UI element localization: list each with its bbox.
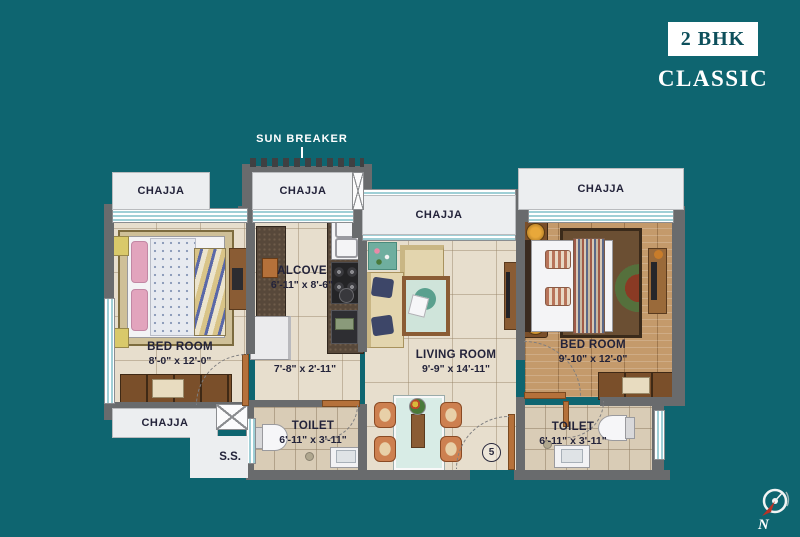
room-size: 6'-11" x 3'-11" [518,435,628,449]
plan-type-badge: 2 BHK [668,22,758,56]
room-size: 8'-0" x 12'-0" [115,355,245,369]
planter [368,242,397,270]
wall [600,397,685,406]
basin-inner [561,449,583,463]
sink-basin [335,238,358,258]
sun-breaker-label: SUN BREAKER [250,133,354,145]
wardrobe-items [152,379,184,398]
chajja-panel: CHAJJA [252,172,354,210]
room-name: LIVING ROOM [386,348,526,363]
room-size: 9'-10" x 12'-0" [525,353,661,367]
toilet-right-label: TOILET 6'-11" x 3'-11" [518,420,628,449]
desk-item [654,250,663,259]
room-name: BED ROOM [115,340,245,355]
chajja-panel: CHAJJA [518,168,684,210]
room-size: 6'-11" x 3'-11" [262,434,364,448]
service-slab-area: S.S. [190,436,248,478]
wall [246,400,326,407]
sofa-cushion [371,315,394,337]
plan-subtitle: CLASSIC [640,66,786,92]
wardrobe-items [622,377,650,394]
bed-pillow [131,241,148,283]
chajja-panel: CHAJJA [362,195,516,235]
microwave-door [335,318,354,330]
room-size: 7'-8" x 2'-11" [252,363,358,377]
door-number-badge: 5 [482,443,501,462]
bed-pillow [545,287,571,306]
window [112,208,248,223]
living-room-label: LIVING ROOM 9'-9" x 14'-11" [386,348,526,377]
ss-label: S.S. [219,451,241,463]
sofa-cushion [371,277,394,299]
bedroom-right-label: BED ROOM 9'-10" x 12'-0" [525,338,661,367]
passage-label: 7'-8" x 2'-11" [252,363,358,377]
room-name: ALCOVE [252,264,352,279]
sun-breaker-teeth [250,158,364,167]
fridge [250,316,291,360]
bed-throw [194,248,226,336]
duct-shaft [216,404,248,430]
wall [246,470,470,480]
bed-runner [573,238,605,334]
bed-pillow [545,250,571,269]
room-name: TOILET [262,419,364,434]
room-name: BED ROOM [525,338,661,353]
window [104,298,115,404]
room-size: 6'-11" x 8'-6" [252,279,352,293]
wall [516,222,525,360]
floor-drain [305,452,314,461]
sun-breaker-pointer [301,147,303,158]
table-runner [411,414,425,448]
window [528,208,674,223]
compass-icon: N [750,484,798,532]
basin-inner [336,450,356,463]
dining-chair [440,402,462,428]
toilet-left-label: TOILET 6'-11" x 3'-11" [262,419,364,448]
bed-duvet [150,238,196,336]
wall [358,222,367,352]
main-door-leaf [508,414,515,470]
wall [672,206,685,401]
duct-shaft [352,172,364,210]
bedroom-left-label: BED ROOM 8'-0" x 12'-0" [115,340,245,369]
dresser-top [232,268,243,290]
chajja-panel: CHAJJA [112,172,210,210]
window [654,410,665,460]
room-name: TOILET [518,420,628,435]
dining-chair [374,436,396,462]
bed-pillow [131,289,148,331]
monitor [651,262,657,300]
compass-north-label: N [757,517,770,532]
wall [514,470,670,480]
tv-screen [506,272,510,318]
nightstand [113,236,129,256]
armchair [400,245,444,278]
compass: N [750,484,798,532]
alcove-label: ALCOVE 6'-11" x 8'-6" [252,264,352,293]
door-number: 5 [489,447,495,458]
chajja-panel: CHAJJA [112,408,218,438]
dining-chair [374,402,396,428]
fruit-bowl [409,398,426,415]
room-size: 9'-9" x 14'-11" [386,363,526,377]
headboard [524,240,531,332]
window [252,208,354,223]
floor-plan-canvas: CHAJJA CHAJJA CHAJJA CHAJJA CHAJJA S.S. … [0,0,800,535]
